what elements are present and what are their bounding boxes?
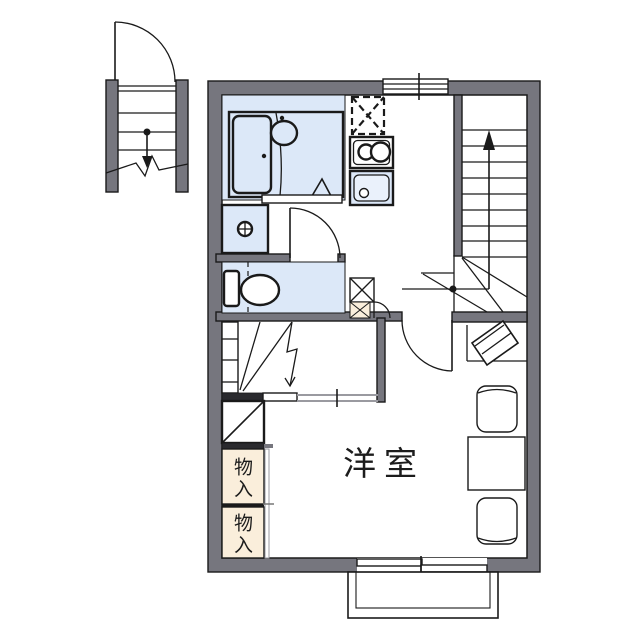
bathroom xyxy=(222,95,345,203)
entrance-door-arc xyxy=(115,22,175,82)
toilet-bowl xyxy=(241,275,279,305)
balcony-area xyxy=(348,556,498,618)
table xyxy=(468,437,525,490)
stairwell-wall xyxy=(454,95,462,256)
toilet-room xyxy=(222,262,345,313)
storage-label-lower: 物入 xyxy=(231,513,253,557)
washing-machine-area xyxy=(222,205,268,253)
floor-plan-page: 物入 物入 洋室 xyxy=(0,0,640,630)
floor-plan-drawing: 物入 物入 洋室 xyxy=(0,0,640,630)
stair-direction-dot xyxy=(450,286,457,293)
stove-burner xyxy=(371,143,390,162)
room-label: 洋室 xyxy=(343,444,425,483)
toilet-tank xyxy=(224,271,239,306)
furniture xyxy=(468,386,525,544)
chair-top xyxy=(477,386,517,432)
balcony-sliding-door-panel xyxy=(357,559,422,566)
sink-drain xyxy=(360,189,369,198)
balcony-sliding-door-panel xyxy=(421,565,487,572)
stair-wall-left xyxy=(106,80,118,192)
stair-wall-right xyxy=(176,80,188,192)
exterior-staircase xyxy=(106,22,188,192)
closet-side-wall xyxy=(377,318,385,402)
storage-label-upper: 物入 xyxy=(231,457,253,501)
washbasin-faucet-dot xyxy=(280,116,284,120)
washbasin xyxy=(271,121,297,145)
balcony xyxy=(348,572,498,618)
bathroom-door-threshold xyxy=(262,195,342,203)
bathtub-drain-dot xyxy=(262,154,266,158)
chair-bottom xyxy=(477,498,517,544)
